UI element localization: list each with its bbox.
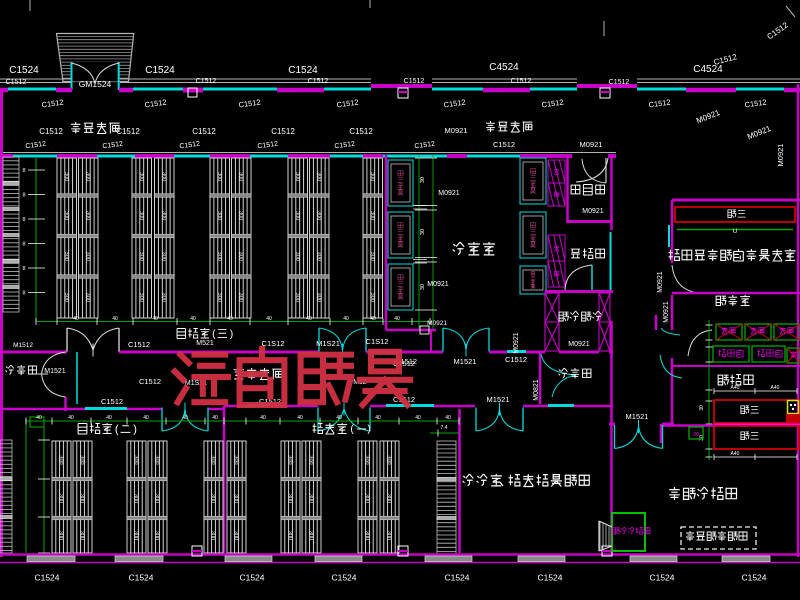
svg-text:40: 40 bbox=[73, 316, 79, 322]
svg-text:M1521: M1521 bbox=[487, 395, 510, 404]
svg-text:M0921: M0921 bbox=[776, 144, 785, 167]
svg-text:300: 300 bbox=[58, 494, 64, 503]
svg-text:300: 300 bbox=[315, 293, 321, 302]
svg-text:GM1524: GM1524 bbox=[79, 79, 112, 89]
svg-text:40: 40 bbox=[306, 316, 312, 322]
svg-text:A40: A40 bbox=[731, 451, 740, 457]
svg-text:300: 300 bbox=[237, 293, 243, 302]
svg-text:40: 40 bbox=[152, 316, 158, 322]
svg-text:C1512: C1512 bbox=[196, 78, 217, 85]
svg-text:300: 300 bbox=[294, 172, 300, 181]
svg-text:300: 300 bbox=[386, 531, 392, 540]
svg-text:30: 30 bbox=[699, 435, 705, 441]
svg-text:300: 300 bbox=[160, 211, 166, 220]
svg-text:C1524: C1524 bbox=[444, 573, 469, 583]
svg-text:): ) bbox=[133, 424, 137, 436]
svg-text:C1512: C1512 bbox=[609, 79, 630, 86]
svg-text:30: 30 bbox=[420, 284, 426, 290]
svg-text:300: 300 bbox=[315, 211, 321, 220]
svg-text:8: 8 bbox=[22, 242, 25, 248]
svg-text:300: 300 bbox=[79, 494, 85, 503]
svg-text:300: 300 bbox=[210, 531, 216, 540]
svg-text:40: 40 bbox=[260, 415, 266, 421]
svg-text:300: 300 bbox=[160, 293, 166, 302]
svg-text:8: 8 bbox=[22, 291, 25, 297]
svg-text:C1512: C1512 bbox=[511, 78, 532, 85]
svg-text:40: 40 bbox=[266, 316, 272, 322]
svg-text:C1S12: C1S12 bbox=[366, 337, 389, 346]
svg-text:M0921: M0921 bbox=[427, 320, 447, 327]
svg-text:300: 300 bbox=[133, 455, 139, 464]
svg-text:300: 300 bbox=[287, 494, 293, 503]
svg-text:300: 300 bbox=[160, 252, 166, 261]
svg-text:M0921: M0921 bbox=[513, 332, 520, 354]
svg-text:300: 300 bbox=[84, 211, 90, 220]
svg-text:(: ( bbox=[212, 328, 216, 340]
svg-text:300: 300 bbox=[308, 494, 314, 503]
svg-text:300: 300 bbox=[294, 211, 300, 220]
svg-text:300: 300 bbox=[369, 211, 375, 220]
svg-text:30: 30 bbox=[420, 229, 426, 235]
svg-text:8: 8 bbox=[22, 266, 25, 272]
svg-text:300: 300 bbox=[154, 531, 160, 540]
svg-text:300: 300 bbox=[84, 293, 90, 302]
svg-text:C1512: C1512 bbox=[192, 127, 216, 136]
svg-text:M1S21: M1S21 bbox=[316, 339, 340, 348]
svg-text:C1512: C1512 bbox=[271, 127, 295, 136]
svg-text:30: 30 bbox=[693, 432, 699, 438]
svg-text:300: 300 bbox=[79, 531, 85, 540]
svg-text:300: 300 bbox=[133, 531, 139, 540]
svg-text:300: 300 bbox=[237, 172, 243, 181]
svg-text:300: 300 bbox=[233, 494, 239, 503]
svg-text:M1521: M1521 bbox=[626, 412, 649, 421]
svg-text:M0821: M0821 bbox=[533, 379, 540, 401]
svg-text:40: 40 bbox=[375, 415, 381, 421]
svg-text:C1524: C1524 bbox=[34, 573, 59, 583]
svg-text:40: 40 bbox=[370, 316, 376, 322]
svg-text:C1512: C1512 bbox=[349, 127, 373, 136]
svg-text:M0921: M0921 bbox=[427, 281, 449, 288]
svg-text:M1521: M1521 bbox=[454, 357, 477, 366]
svg-text:300: 300 bbox=[294, 293, 300, 302]
svg-text:M0921: M0921 bbox=[580, 140, 603, 149]
svg-text:40: 40 bbox=[445, 415, 451, 421]
svg-text:300: 300 bbox=[237, 211, 243, 220]
svg-text:40: 40 bbox=[336, 415, 342, 421]
svg-text:300: 300 bbox=[84, 252, 90, 261]
svg-text:C1512: C1512 bbox=[139, 377, 161, 386]
svg-text:40: 40 bbox=[106, 415, 112, 421]
svg-text:C1524: C1524 bbox=[145, 65, 175, 76]
svg-text:300: 300 bbox=[386, 494, 392, 503]
svg-text:300: 300 bbox=[154, 455, 160, 464]
svg-text:300: 300 bbox=[287, 531, 293, 540]
svg-text:300: 300 bbox=[138, 211, 144, 220]
svg-text:300: 300 bbox=[216, 293, 222, 302]
svg-text:40: 40 bbox=[212, 415, 218, 421]
svg-text:C1524: C1524 bbox=[9, 65, 39, 76]
svg-text:30: 30 bbox=[420, 177, 426, 183]
svg-text:C1512: C1512 bbox=[101, 397, 123, 406]
svg-text:300: 300 bbox=[364, 494, 370, 503]
svg-text:300: 300 bbox=[294, 252, 300, 261]
svg-text:C1512: C1512 bbox=[39, 127, 63, 136]
svg-text:300: 300 bbox=[216, 252, 222, 261]
svg-text:C1524: C1524 bbox=[128, 573, 153, 583]
svg-text:300: 300 bbox=[369, 252, 375, 261]
svg-text:M0921: M0921 bbox=[657, 271, 664, 293]
svg-text:300: 300 bbox=[138, 252, 144, 261]
svg-text:300: 300 bbox=[216, 211, 222, 220]
svg-text:C1524: C1524 bbox=[741, 573, 766, 583]
svg-text:30: 30 bbox=[699, 405, 705, 411]
svg-text:300: 300 bbox=[138, 293, 144, 302]
svg-text:300: 300 bbox=[315, 172, 321, 181]
svg-text:M0921: M0921 bbox=[582, 208, 604, 215]
svg-text:40: 40 bbox=[36, 415, 42, 421]
svg-text:A40: A40 bbox=[731, 385, 740, 391]
svg-text:M0921: M0921 bbox=[438, 190, 460, 197]
svg-text:300: 300 bbox=[364, 531, 370, 540]
svg-text:300: 300 bbox=[210, 494, 216, 503]
svg-text:40: 40 bbox=[394, 316, 400, 322]
svg-text:(: ( bbox=[115, 424, 119, 436]
svg-text:A40: A40 bbox=[771, 385, 780, 391]
svg-text:U: U bbox=[733, 229, 737, 235]
svg-text:C1524: C1524 bbox=[537, 573, 562, 583]
svg-text:40: 40 bbox=[190, 316, 196, 322]
svg-text:40: 40 bbox=[227, 316, 233, 322]
svg-text:M521: M521 bbox=[196, 340, 214, 347]
svg-text:300: 300 bbox=[315, 252, 321, 261]
svg-text:M0921: M0921 bbox=[663, 301, 670, 323]
svg-text:8: 8 bbox=[22, 168, 25, 174]
svg-text:300: 300 bbox=[216, 172, 222, 181]
svg-text:C1524: C1524 bbox=[288, 65, 318, 76]
svg-text:C1512: C1512 bbox=[404, 78, 425, 85]
svg-text:300: 300 bbox=[233, 455, 239, 464]
svg-text:40: 40 bbox=[112, 316, 118, 322]
svg-text:300: 300 bbox=[84, 172, 90, 181]
svg-text:300: 300 bbox=[133, 494, 139, 503]
svg-text:300: 300 bbox=[386, 455, 392, 464]
svg-text:C1512: C1512 bbox=[308, 78, 329, 85]
svg-text:300: 300 bbox=[63, 172, 69, 181]
svg-text:C1524: C1524 bbox=[649, 573, 674, 583]
svg-text:300: 300 bbox=[308, 455, 314, 464]
svg-text:300: 300 bbox=[63, 211, 69, 220]
svg-text:8: 8 bbox=[22, 193, 25, 199]
svg-text:C1512: C1512 bbox=[6, 79, 27, 86]
svg-text:7.4: 7.4 bbox=[441, 425, 448, 431]
svg-text:M0921: M0921 bbox=[568, 341, 590, 348]
svg-text:C1512: C1512 bbox=[116, 127, 140, 136]
svg-text:40: 40 bbox=[297, 415, 303, 421]
svg-text:): ) bbox=[230, 328, 234, 340]
svg-text:300: 300 bbox=[58, 455, 64, 464]
svg-text:C1524: C1524 bbox=[239, 573, 264, 583]
svg-text:40: 40 bbox=[68, 415, 74, 421]
svg-text:M1512: M1512 bbox=[13, 342, 33, 349]
svg-text:300: 300 bbox=[138, 172, 144, 181]
svg-text:300: 300 bbox=[369, 172, 375, 181]
svg-text:40: 40 bbox=[415, 415, 421, 421]
svg-text:40: 40 bbox=[343, 316, 349, 322]
svg-text:C4524: C4524 bbox=[489, 62, 519, 73]
svg-text:300: 300 bbox=[237, 252, 243, 261]
svg-text:M0921: M0921 bbox=[445, 126, 468, 135]
svg-text:300: 300 bbox=[210, 455, 216, 464]
svg-text:40: 40 bbox=[182, 415, 188, 421]
svg-text:300: 300 bbox=[63, 293, 69, 302]
svg-text:300: 300 bbox=[58, 531, 64, 540]
svg-text:C1524: C1524 bbox=[331, 573, 356, 583]
svg-text:300: 300 bbox=[287, 455, 293, 464]
svg-text:300: 300 bbox=[79, 455, 85, 464]
svg-text:300: 300 bbox=[364, 455, 370, 464]
svg-text:300: 300 bbox=[308, 531, 314, 540]
svg-text:C1512: C1512 bbox=[493, 140, 515, 149]
svg-text:300: 300 bbox=[154, 494, 160, 503]
svg-text:300: 300 bbox=[233, 531, 239, 540]
svg-text:300: 300 bbox=[63, 252, 69, 261]
svg-text:300: 300 bbox=[160, 172, 166, 181]
svg-text:C1512: C1512 bbox=[128, 340, 150, 349]
svg-text:C1512: C1512 bbox=[505, 355, 527, 364]
svg-text:): ) bbox=[367, 424, 370, 435]
svg-text:8: 8 bbox=[22, 217, 25, 223]
svg-text:40: 40 bbox=[143, 415, 149, 421]
svg-text:300: 300 bbox=[369, 293, 375, 302]
